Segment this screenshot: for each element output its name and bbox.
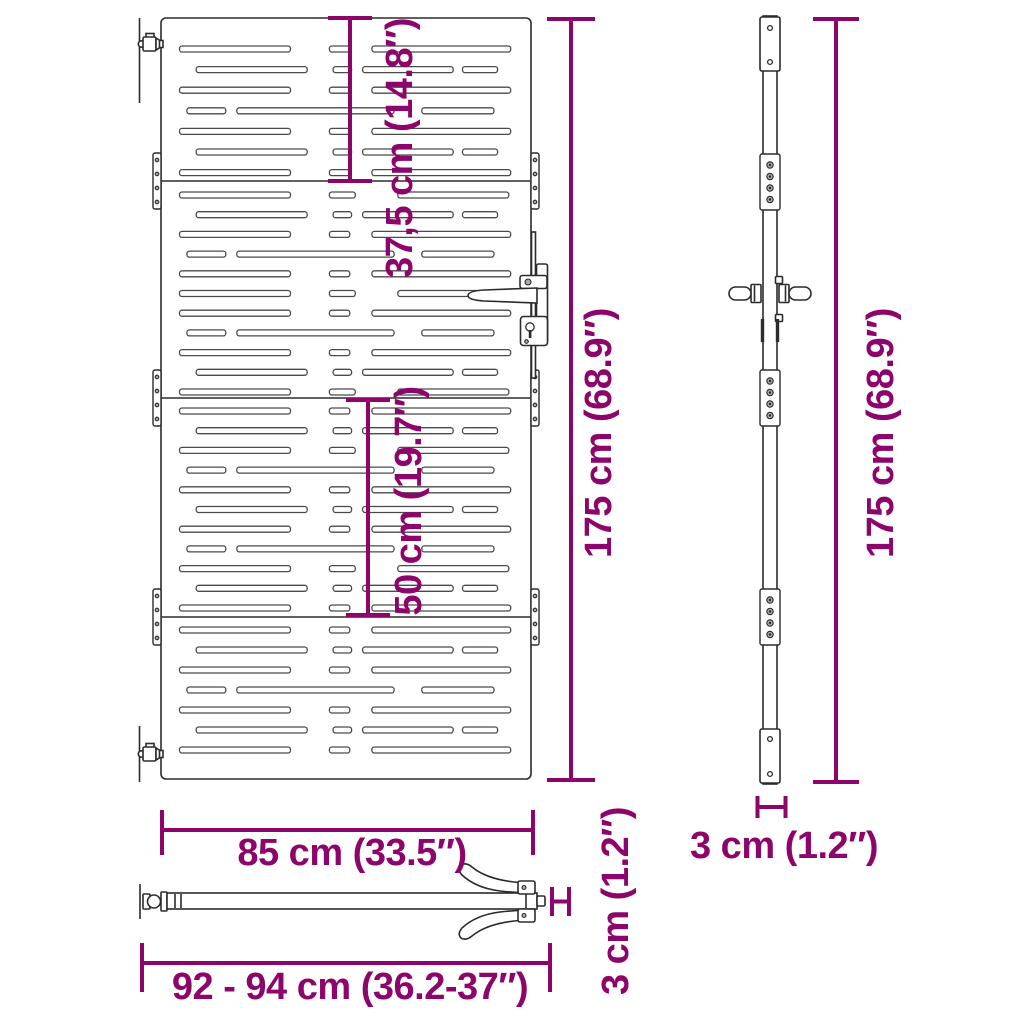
label-section-top-height: 37,5 cm (14.8″) <box>381 18 419 278</box>
handle-pivot-bracket <box>520 276 547 289</box>
gate-front-view <box>138 18 547 782</box>
label-total-height-front: 175 cm (68.9″) <box>580 308 618 558</box>
label-total-height-side: 175 cm (68.9″) <box>862 308 900 558</box>
dim-bracket-depth-top <box>552 887 569 916</box>
wall-hinge-top <box>138 34 163 52</box>
top-latch-nub <box>537 896 545 906</box>
side-handle-grip-left <box>729 287 751 300</box>
handle-lever <box>468 288 537 303</box>
pivot-bolt <box>525 279 531 285</box>
keyhole-slot <box>529 330 532 338</box>
label-gate-width: 85 cm (33.5″) <box>237 834 466 872</box>
side-latch-mark-right <box>776 319 779 342</box>
side-latch-mark-left <box>761 319 764 342</box>
dimension-diagram: 37,5 cm (14.8″) 50 cm (19.7″) 175 cm (68… <box>0 0 1024 1024</box>
latch-rod <box>532 232 536 378</box>
dim-bracket-depth-side <box>758 796 786 818</box>
label-depth-top: 3 cm (1.2″) <box>597 807 635 995</box>
keyhole <box>526 323 534 331</box>
top-bar <box>167 893 537 909</box>
label-section-mid-height: 50 cm (19.7″) <box>390 386 428 615</box>
label-overall-width: 92 - 94 cm (36.2-37″) <box>172 968 528 1006</box>
gate-side-view <box>729 16 811 784</box>
label-depth-side: 3 cm (1.2″) <box>690 827 878 865</box>
top-hinge-pin <box>148 895 161 908</box>
lock-screw <box>525 340 529 344</box>
side-handle-grip-right <box>789 287 811 300</box>
wall-hinge-bottom <box>138 744 163 762</box>
dim-line-total-height-side <box>813 19 859 782</box>
gate-top-view <box>140 864 545 939</box>
